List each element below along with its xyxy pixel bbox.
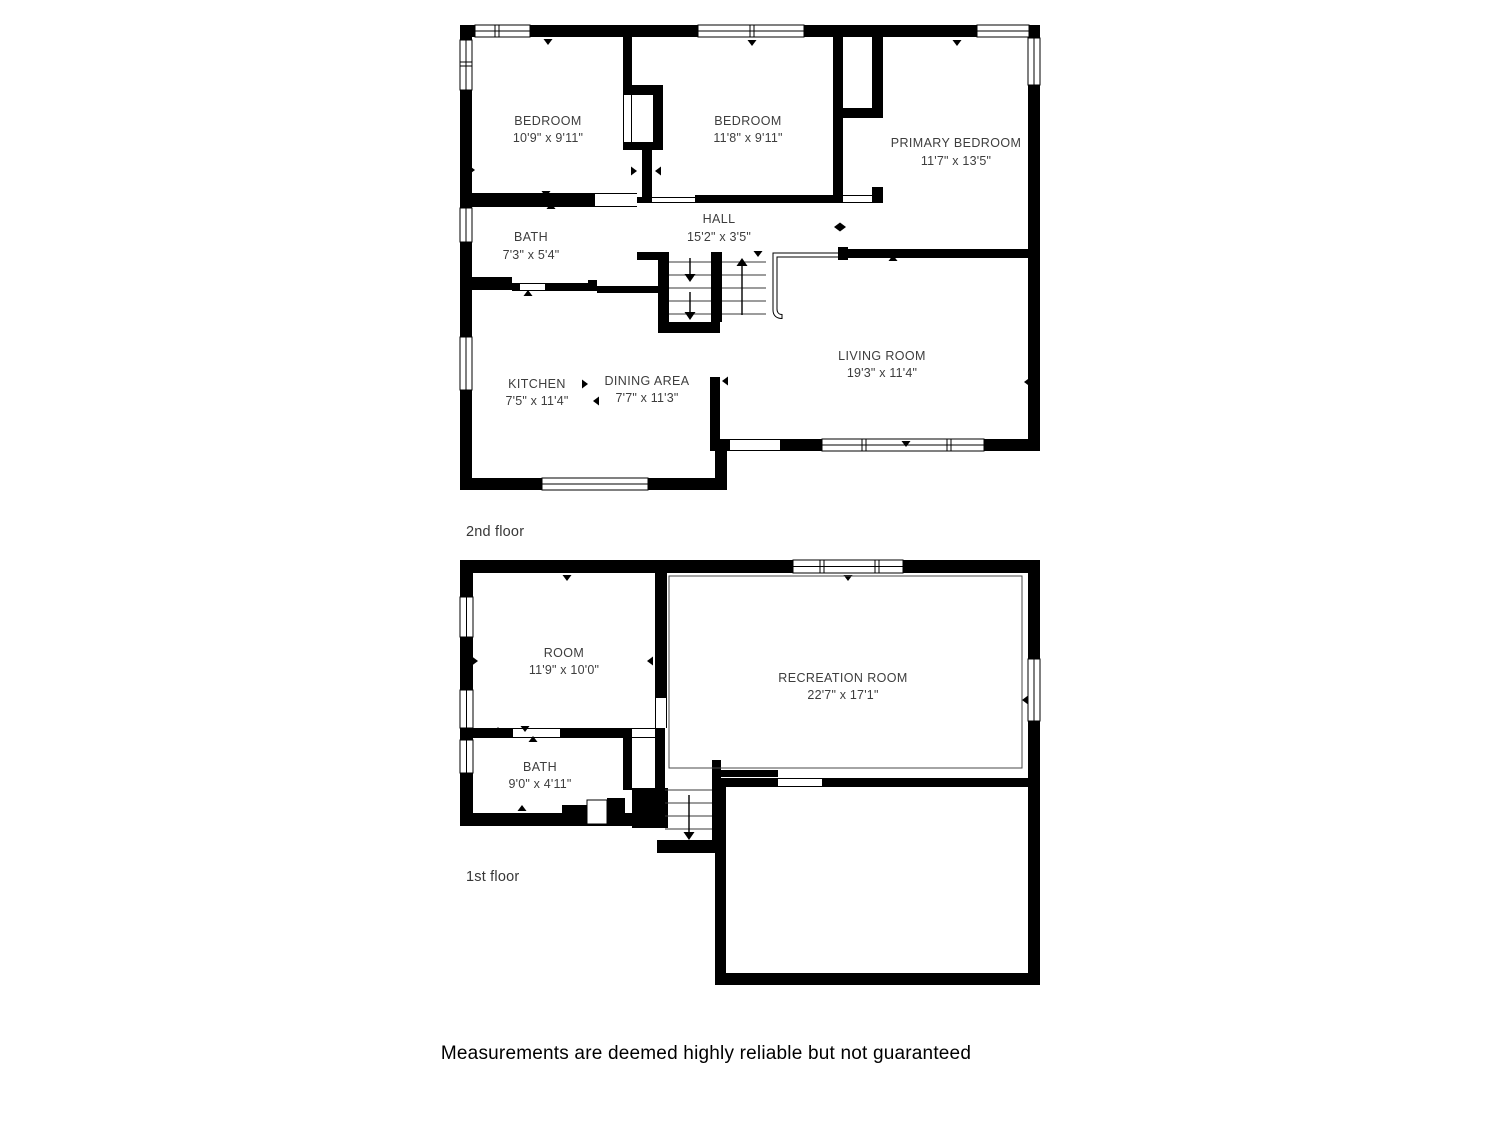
door-swing-tick-icon <box>563 575 572 581</box>
room-dims-room: 11'9" x 10'0" <box>529 663 599 677</box>
door-opening <box>513 728 560 738</box>
room-label-dining-area: DINING AREA <box>605 374 690 388</box>
caption-1st-floor: 1st floor <box>466 869 519 885</box>
room-dims-recreation-room: 22'7" x 17'1" <box>807 688 878 702</box>
room-label-living-room: LIVING ROOM <box>838 349 926 363</box>
stairs-down-arrowhead-icon <box>684 832 695 840</box>
room-label-primary-bedroom: PRIMARY BEDROOM <box>891 136 1022 150</box>
door-opening <box>655 698 667 728</box>
door-swing-tick-icon <box>1024 378 1030 387</box>
room-label-bath-1st: BATH <box>523 760 557 774</box>
room-dims-bath-1st: 9'0" x 4'11" <box>508 777 571 791</box>
room-dims-bath-2nd: 7'3" x 5'4" <box>503 248 560 262</box>
room-label-bedroom-1: BEDROOM <box>514 114 581 128</box>
stairs-down-arrowhead-icon <box>685 274 696 282</box>
stairs-down-arrowhead-icon <box>685 312 696 320</box>
door-swing-tick-icon <box>754 251 763 257</box>
door-swing-tick-icon <box>655 167 661 176</box>
door-swing-tick-icon <box>953 40 962 46</box>
floor-plan-canvas: BEDROOM 10'9" x 9'11" BEDROOM 11'8" x 9'… <box>0 0 1500 1125</box>
door-opening <box>843 195 872 203</box>
door-swing-tick-icon <box>834 223 840 232</box>
floor-plan-page: BEDROOM 10'9" x 9'11" BEDROOM 11'8" x 9'… <box>0 0 1500 1125</box>
room-label-recreation-room: RECREATION ROOM <box>778 671 907 685</box>
door-swing-tick-icon <box>647 657 653 666</box>
room-dims-hall: 15'2" x 3'5" <box>687 230 751 244</box>
room-dims-bedroom-2: 11'8" x 9'11" <box>713 131 782 145</box>
door-swing-tick-icon <box>593 397 599 406</box>
door-opening <box>623 95 632 142</box>
niche-outline <box>587 800 607 824</box>
room-dims-primary-bedroom: 11'7" x 13'5" <box>921 154 991 168</box>
door-swing-tick-icon <box>631 167 637 176</box>
stair-railing-line <box>773 253 838 319</box>
room-dims-bedroom-1: 10'9" x 9'11" <box>513 131 583 145</box>
caption-2nd-floor: 2nd floor <box>466 524 524 540</box>
door-swing-tick-icon <box>1022 696 1028 705</box>
room-dims-dining-area: 7'7" x 11'3" <box>615 391 678 405</box>
room-dims-living-room: 19'3" x 11'4" <box>847 366 917 380</box>
door-opening <box>778 778 822 787</box>
room-label-room: ROOM <box>544 646 585 660</box>
door-swing-tick-icon <box>722 377 728 386</box>
door-swing-tick-icon <box>544 39 553 45</box>
door-opening <box>595 193 637 207</box>
door-swing-tick-icon <box>518 805 527 811</box>
door-swing-tick-icon <box>472 657 478 666</box>
room-label-bedroom-2: BEDROOM <box>714 114 781 128</box>
door-swing-tick-icon <box>840 223 846 232</box>
door-opening <box>632 728 655 738</box>
door-swing-tick-icon <box>582 380 588 389</box>
door-opening <box>730 439 780 451</box>
room-label-kitchen: KITCHEN <box>508 377 566 391</box>
room-label-bath-2nd: BATH <box>514 230 548 244</box>
room-label-hall: HALL <box>703 212 736 226</box>
stairs-layer <box>665 258 766 840</box>
room-dims-kitchen: 7'5" x 11'4" <box>505 394 568 408</box>
door-opening <box>520 283 545 291</box>
disclaimer-text: Measurements are deemed highly reliable … <box>441 1043 971 1064</box>
door-swing-tick-icon <box>748 40 757 46</box>
